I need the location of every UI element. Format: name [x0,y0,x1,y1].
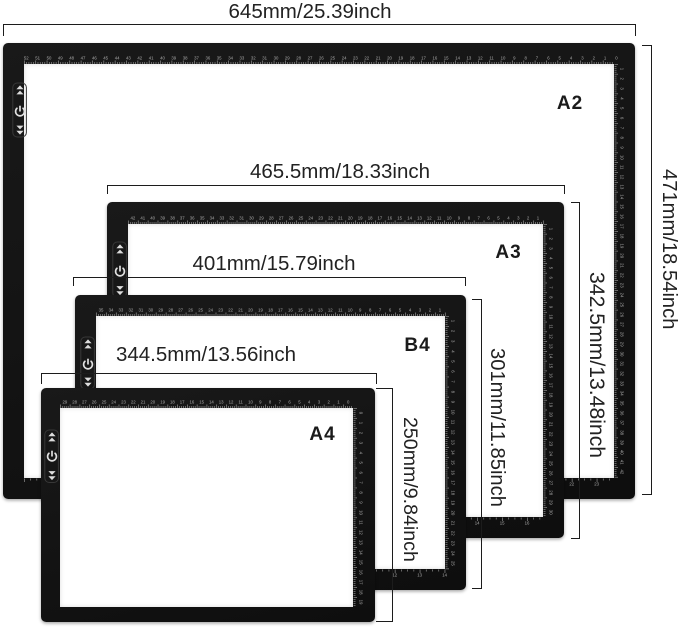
svg-text:34: 34 [620,391,625,396]
svg-text:9: 9 [458,216,461,221]
svg-text:19: 19 [258,308,263,313]
svg-text:20: 20 [451,511,456,516]
svg-text:19: 19 [451,500,456,505]
svg-text:40: 40 [160,56,165,61]
svg-text:8: 8 [549,296,554,299]
svg-text:15: 15 [444,56,449,61]
svg-text:250mm/9.84inch: 250mm/9.84inch [399,417,421,562]
svg-text:15: 15 [359,560,364,565]
svg-text:8: 8 [269,400,272,405]
svg-text:41: 41 [140,216,145,221]
svg-text:23: 23 [594,482,599,487]
svg-text:46: 46 [92,56,97,61]
svg-text:6: 6 [620,117,625,120]
svg-text:8: 8 [451,391,456,394]
svg-text:10: 10 [348,308,353,313]
svg-text:35: 35 [99,308,104,313]
svg-text:2: 2 [429,308,432,313]
svg-text:4: 4 [409,308,412,313]
svg-text:3: 3 [359,442,364,445]
svg-text:39: 39 [160,216,165,221]
svg-text:34: 34 [109,308,114,313]
svg-text:21: 21 [620,263,625,268]
svg-text:26: 26 [620,312,625,317]
svg-text:2: 2 [359,432,364,435]
svg-text:28: 28 [549,490,554,495]
svg-text:11: 11 [620,165,625,170]
svg-text:17: 17 [451,480,456,485]
svg-text:33: 33 [620,381,625,386]
svg-text:21: 21 [376,56,381,61]
svg-text:42: 42 [620,470,625,475]
svg-text:14: 14 [359,550,364,555]
svg-text:11: 11 [489,56,494,61]
svg-text:27: 27 [178,308,183,313]
svg-text:25: 25 [330,56,335,61]
svg-text:38: 38 [183,56,188,61]
svg-text:30: 30 [148,308,153,313]
svg-text:14: 14 [407,216,412,221]
svg-text:21: 21 [338,216,343,221]
svg-text:1: 1 [439,308,442,313]
svg-text:29: 29 [259,216,264,221]
svg-text:10: 10 [447,216,452,221]
svg-text:2: 2 [620,78,625,81]
svg-text:31: 31 [139,308,144,313]
svg-text:26: 26 [319,56,324,61]
svg-text:0: 0 [615,56,618,61]
svg-text:20: 20 [620,253,625,258]
svg-text:51: 51 [35,56,40,61]
svg-text:8: 8 [620,137,625,140]
svg-text:6: 6 [547,56,550,61]
svg-text:29: 29 [63,400,68,405]
svg-text:45: 45 [103,56,108,61]
svg-text:8: 8 [525,56,528,61]
svg-text:22: 22 [328,216,333,221]
svg-text:17: 17 [278,308,283,313]
svg-text:36: 36 [620,411,625,416]
svg-text:30: 30 [249,216,254,221]
svg-text:18: 18 [268,308,273,313]
svg-text:40: 40 [150,216,155,221]
svg-text:4: 4 [570,56,573,61]
svg-text:0: 0 [359,412,364,415]
svg-text:24: 24 [208,308,213,313]
svg-text:22: 22 [364,56,369,61]
svg-text:11: 11 [338,308,343,313]
svg-text:24: 24 [549,451,554,456]
svg-text:1: 1 [604,56,607,61]
svg-text:50: 50 [47,56,52,61]
svg-text:24: 24 [342,56,347,61]
svg-text:31: 31 [620,361,625,366]
svg-text:25: 25 [620,302,625,307]
svg-text:17: 17 [549,383,554,388]
svg-text:16: 16 [620,214,625,219]
svg-text:15: 15 [620,204,625,209]
svg-text:9: 9 [259,400,262,405]
svg-text:19: 19 [160,400,165,405]
svg-text:9: 9 [359,501,364,504]
svg-text:9: 9 [359,308,362,313]
svg-text:20: 20 [387,56,392,61]
svg-text:7: 7 [549,286,554,289]
svg-text:12: 12 [328,308,333,313]
svg-text:14: 14 [620,194,625,199]
svg-text:33: 33 [119,308,124,313]
svg-text:4: 4 [359,452,364,455]
svg-text:6: 6 [389,308,392,313]
svg-text:13: 13 [318,308,323,313]
svg-text:11: 11 [359,520,364,525]
svg-text:11: 11 [437,216,442,221]
svg-text:32: 32 [129,308,134,313]
svg-text:12: 12 [478,56,483,61]
svg-text:16: 16 [288,308,293,313]
svg-text:20: 20 [549,412,554,417]
svg-text:1: 1 [549,228,554,231]
svg-text:21: 21 [549,422,554,427]
svg-text:25: 25 [299,216,304,221]
svg-text:21: 21 [238,308,243,313]
svg-text:17: 17 [421,56,426,61]
svg-text:1: 1 [451,320,456,323]
svg-text:25: 25 [198,308,203,313]
svg-text:4: 4 [308,400,311,405]
svg-text:19: 19 [549,402,554,407]
svg-text:40: 40 [620,450,625,455]
svg-text:28: 28 [296,56,301,61]
svg-text:15: 15 [397,216,402,221]
svg-text:35: 35 [200,216,205,221]
svg-text:15: 15 [298,308,303,313]
svg-text:3: 3 [517,216,520,221]
svg-text:1: 1 [620,68,625,71]
svg-text:10: 10 [359,510,364,515]
svg-text:3: 3 [451,340,456,343]
svg-text:3: 3 [549,247,554,250]
svg-text:42: 42 [131,216,136,221]
svg-text:24: 24 [308,216,313,221]
svg-text:14: 14 [451,450,456,455]
svg-text:3: 3 [581,56,584,61]
svg-text:4: 4 [549,257,554,260]
svg-text:27: 27 [279,216,284,221]
svg-text:19: 19 [620,244,625,249]
svg-text:13: 13 [417,573,422,578]
svg-text:23: 23 [549,441,554,446]
svg-text:5: 5 [359,462,364,465]
svg-text:7: 7 [536,56,539,61]
svg-text:5: 5 [399,308,402,313]
svg-text:23: 23 [121,400,126,405]
svg-text:0: 0 [347,400,350,405]
svg-text:6: 6 [451,370,456,373]
svg-text:13: 13 [549,344,554,349]
svg-text:27: 27 [308,56,313,61]
svg-text:10: 10 [620,155,625,160]
svg-text:25: 25 [102,400,107,405]
svg-text:13: 13 [451,440,456,445]
svg-text:19: 19 [398,56,403,61]
svg-text:14: 14 [308,308,313,313]
svg-text:25: 25 [549,461,554,466]
svg-text:6: 6 [288,400,291,405]
svg-text:16: 16 [451,470,456,475]
svg-text:5: 5 [497,216,500,221]
svg-text:48: 48 [69,56,74,61]
svg-text:35: 35 [217,56,222,61]
svg-text:1: 1 [537,216,540,221]
svg-text:7: 7 [620,127,625,130]
svg-text:29: 29 [620,342,625,347]
svg-text:33: 33 [240,56,245,61]
svg-text:23: 23 [218,308,223,313]
svg-text:7: 7 [379,308,382,313]
svg-text:14: 14 [209,400,214,405]
svg-text:11: 11 [549,324,554,329]
svg-text:4: 4 [451,350,456,353]
svg-text:10: 10 [501,56,506,61]
svg-text:30: 30 [549,510,554,515]
svg-text:2: 2 [451,330,456,333]
svg-text:2: 2 [527,216,530,221]
svg-text:29: 29 [549,500,554,505]
svg-text:342.5mm/13.48inch: 342.5mm/13.48inch [585,272,608,458]
svg-text:16: 16 [549,373,554,378]
svg-text:8: 8 [468,216,471,221]
svg-text:28: 28 [168,308,173,313]
svg-text:25: 25 [451,561,456,566]
svg-text:37: 37 [194,56,199,61]
svg-text:11: 11 [451,420,456,425]
svg-text:26: 26 [549,471,554,476]
svg-text:23: 23 [318,216,323,221]
svg-text:5: 5 [620,107,625,110]
svg-text:1: 1 [337,400,340,405]
svg-text:18: 18 [549,393,554,398]
svg-text:9: 9 [451,401,456,404]
svg-text:42: 42 [137,56,142,61]
svg-text:28: 28 [620,332,625,337]
svg-text:21: 21 [451,521,456,526]
svg-text:29: 29 [158,308,163,313]
svg-text:16: 16 [359,570,364,575]
svg-text:6: 6 [359,472,364,475]
svg-text:18: 18 [359,590,364,595]
svg-text:32: 32 [620,371,625,376]
svg-text:34: 34 [228,56,233,61]
svg-text:2: 2 [549,238,554,241]
svg-text:301mm/11.85inch: 301mm/11.85inch [486,348,508,507]
svg-text:17: 17 [180,400,185,405]
svg-text:28: 28 [72,400,77,405]
svg-text:35: 35 [620,401,625,406]
svg-text:16: 16 [525,521,530,526]
svg-text:7: 7 [359,481,364,484]
svg-text:18: 18 [410,56,415,61]
svg-text:7: 7 [478,216,481,221]
svg-text:17: 17 [620,224,625,229]
svg-text:36: 36 [190,216,195,221]
svg-text:7: 7 [451,380,456,383]
svg-text:18: 18 [368,216,373,221]
svg-text:2: 2 [593,56,596,61]
svg-text:32: 32 [229,216,234,221]
svg-text:12: 12 [620,175,625,180]
svg-text:44: 44 [115,56,120,61]
svg-text:27: 27 [620,322,625,327]
svg-text:38: 38 [170,216,175,221]
svg-text:5: 5 [559,56,562,61]
svg-text:9: 9 [549,306,554,309]
svg-text:10: 10 [248,400,253,405]
svg-text:33: 33 [220,216,225,221]
svg-text:17: 17 [359,580,364,585]
svg-text:11: 11 [238,400,243,405]
svg-text:28: 28 [269,216,274,221]
svg-text:4: 4 [620,97,625,100]
svg-text:9: 9 [620,146,625,149]
svg-text:3: 3 [318,400,321,405]
svg-text:5: 5 [549,267,554,270]
svg-text:37: 37 [620,420,625,425]
svg-text:24: 24 [111,400,116,405]
svg-text:19: 19 [358,216,363,221]
svg-text:20: 20 [150,400,155,405]
svg-text:18: 18 [170,400,175,405]
svg-text:36: 36 [206,56,211,61]
svg-text:24: 24 [620,293,625,298]
svg-text:8: 8 [359,491,364,494]
svg-text:10: 10 [451,410,456,415]
svg-text:6: 6 [487,216,490,221]
svg-text:18: 18 [620,234,625,239]
svg-text:43: 43 [126,56,131,61]
svg-text:4: 4 [507,216,510,221]
svg-text:41: 41 [149,56,154,61]
svg-text:7: 7 [279,400,282,405]
svg-text:12: 12 [451,430,456,435]
svg-text:15: 15 [451,460,456,465]
svg-text:37: 37 [180,216,185,221]
svg-text:20: 20 [248,308,253,313]
svg-text:29: 29 [285,56,290,61]
svg-text:12: 12 [359,530,364,535]
svg-text:30: 30 [274,56,279,61]
svg-text:18: 18 [451,490,456,495]
svg-text:12: 12 [229,400,234,405]
svg-text:26: 26 [289,216,294,221]
svg-text:22: 22 [620,273,625,278]
svg-text:26: 26 [92,400,97,405]
svg-text:23: 23 [620,283,625,288]
svg-text:13: 13 [219,400,224,405]
svg-text:47: 47 [81,56,86,61]
svg-text:27: 27 [549,481,554,486]
svg-text:20: 20 [348,216,353,221]
svg-text:1: 1 [359,422,364,425]
svg-text:15: 15 [500,521,505,526]
svg-text:2: 2 [328,400,331,405]
svg-text:10: 10 [549,314,554,319]
svg-text:22: 22 [451,531,456,536]
svg-text:21: 21 [141,400,146,405]
svg-text:22: 22 [228,308,233,313]
svg-text:23: 23 [353,56,358,61]
svg-text:26: 26 [188,308,193,313]
svg-text:5: 5 [451,360,456,363]
svg-text:12: 12 [427,216,432,221]
svg-text:6: 6 [549,277,554,280]
svg-text:49: 49 [58,56,63,61]
svg-text:39: 39 [171,56,176,61]
svg-text:19: 19 [359,600,364,605]
svg-text:16: 16 [190,400,195,405]
svg-text:15: 15 [549,363,554,368]
svg-text:14: 14 [455,56,460,61]
svg-text:8: 8 [369,308,372,313]
svg-text:12: 12 [549,334,554,339]
svg-text:23: 23 [451,541,456,546]
svg-text:13: 13 [620,185,625,190]
svg-text:30: 30 [620,352,625,357]
svg-text:31: 31 [262,56,267,61]
svg-text:24: 24 [451,551,456,556]
svg-text:41: 41 [620,460,625,465]
svg-text:31: 31 [239,216,244,221]
svg-text:39: 39 [620,440,625,445]
svg-text:9: 9 [513,56,516,61]
svg-text:16: 16 [387,216,392,221]
svg-text:13: 13 [467,56,472,61]
svg-text:38: 38 [620,430,625,435]
svg-text:3: 3 [419,308,422,313]
svg-text:14: 14 [442,573,447,578]
svg-text:34: 34 [210,216,215,221]
svg-text:14: 14 [549,354,554,359]
svg-text:15: 15 [199,400,204,405]
svg-text:27: 27 [82,400,87,405]
svg-text:22: 22 [131,400,136,405]
svg-text:5: 5 [298,400,301,405]
svg-text:13: 13 [417,216,422,221]
svg-text:13: 13 [359,540,364,545]
svg-text:32: 32 [251,56,256,61]
svg-text:3: 3 [620,87,625,90]
svg-text:17: 17 [378,216,383,221]
svg-text:471mm/18.54inch: 471mm/18.54inch [658,169,679,329]
svg-text:52: 52 [24,56,29,61]
svg-text:22: 22 [549,432,554,437]
svg-text:16: 16 [433,56,438,61]
